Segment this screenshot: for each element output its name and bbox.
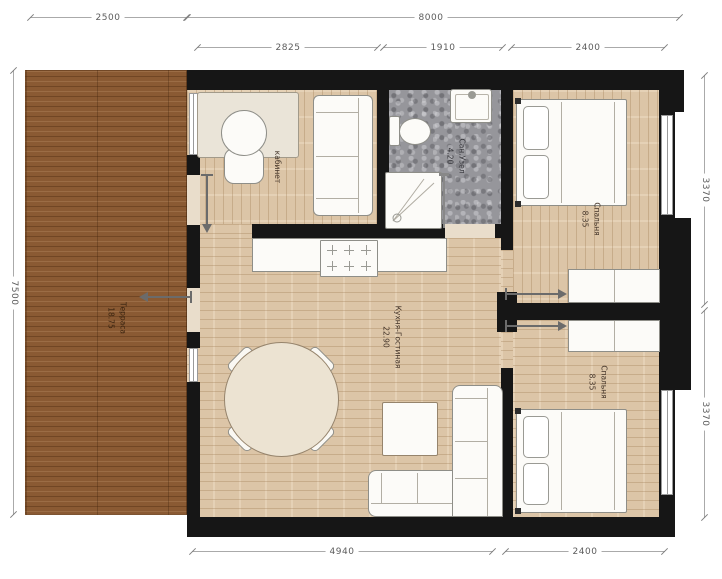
dim-bedroom1-width: 2400 — [572, 43, 605, 53]
terrace-floor — [25, 70, 187, 515]
wall-right-protrusion — [675, 218, 691, 390]
bed-post — [515, 98, 521, 104]
dim-bedroom2-height: 3370 — [700, 398, 710, 431]
room-area: 22.90 — [380, 306, 392, 369]
sofa-armrest-seam — [316, 112, 358, 113]
dim-terrace-width: 2500 — [92, 13, 125, 23]
wall-left-seg1 — [187, 155, 200, 175]
wall-left-seg3 — [187, 332, 200, 348]
dining-table — [224, 342, 339, 457]
shower-partition — [443, 174, 445, 228]
bedroom2-window — [661, 390, 673, 495]
stove-burner — [359, 243, 373, 257]
bathroom-door-threshold — [445, 224, 495, 238]
office-terrace-door-arrow-shaft — [206, 175, 208, 225]
wardrobe-divider — [614, 321, 615, 351]
bedroom2-door-arrow-tail — [505, 320, 507, 332]
footboard-seam — [614, 412, 615, 510]
sink-faucet — [468, 91, 476, 99]
room-label-bedroom1: Спальня 8.35 — [579, 202, 602, 235]
room-name: кабинет — [271, 151, 283, 184]
bedroom1-door-arrow-tail — [505, 288, 507, 300]
room-name: Спальня — [591, 202, 603, 235]
stove-burner — [325, 243, 339, 257]
wall-left-seg4 — [187, 382, 200, 517]
dim-office-width: 2825 — [272, 43, 305, 53]
living-terrace-door-arrow-shaft — [148, 296, 192, 298]
living-terrace-door-threshold — [187, 288, 200, 332]
stove-burner — [359, 259, 373, 273]
bedroom2-door-arrow-head — [558, 321, 567, 331]
dim-bathroom-width: 1910 — [427, 43, 460, 53]
sofa-back-seam — [487, 388, 488, 516]
bed-post — [515, 508, 521, 514]
stove-burner — [342, 243, 356, 257]
dim-bedroom1-height: 3370 — [700, 174, 710, 207]
sofa-cushion-seam — [417, 473, 418, 503]
footboard-seam — [614, 102, 615, 203]
office-terrace-door-threshold — [187, 175, 200, 225]
sofa-armrest-seam — [455, 398, 487, 399]
office-terrace-door-arrow-tail — [201, 174, 213, 176]
stove-burner — [325, 259, 339, 273]
room-area: 18.75 — [105, 302, 117, 334]
sofa-back-seam — [358, 98, 359, 213]
living-window — [189, 348, 198, 382]
room-area: 8.35 — [579, 202, 591, 235]
room-name: Кухня-Гостиная — [392, 306, 404, 369]
sofa-armrest-seam — [316, 198, 358, 199]
bed-bedroom1 — [516, 99, 627, 206]
wall-bottom — [187, 517, 675, 537]
room-label-terrace: Терраса 18.75 — [105, 302, 128, 334]
bed-post — [515, 408, 521, 414]
office-sofa — [313, 95, 373, 216]
bed-post — [515, 201, 521, 207]
bedroom2-door-threshold — [501, 332, 513, 368]
living-terrace-door-arrow-head — [139, 292, 148, 302]
room-name: Терраса — [117, 302, 129, 334]
sofa-cushion-seam — [455, 478, 487, 479]
bed-bedroom2 — [516, 409, 627, 513]
corner-sofa-vertical — [452, 385, 503, 517]
bedroom1-door-threshold — [501, 250, 513, 292]
stove — [320, 240, 378, 277]
sink — [450, 89, 492, 123]
bedroom2-door-arrow-shaft — [507, 325, 559, 327]
dim-living-width: 4940 — [326, 547, 359, 557]
stove-burner — [342, 259, 356, 273]
blanket-seam — [561, 102, 562, 203]
wall-top — [187, 70, 675, 90]
wall-left-seg2 — [187, 225, 200, 288]
office-chair-seat — [221, 110, 267, 156]
floor-plan: 2500 8000 2825 1910 2400 7500 3370 3370 … — [0, 0, 722, 579]
shower-glass-lines — [386, 173, 441, 228]
toilet-bowl — [399, 118, 431, 145]
wall-bathroom-corner — [495, 224, 513, 238]
room-label-living: Кухня-Гостиная 22.90 — [380, 306, 403, 369]
dim-total-height: 7500 — [9, 277, 19, 310]
room-label-bathroom: Сан.Узел 4.20 — [444, 138, 467, 173]
sofa-armrest-seam — [381, 473, 382, 503]
coffee-table — [382, 402, 438, 456]
bedroom1-window — [661, 115, 673, 215]
dim-bedroom2-width: 2400 — [569, 547, 602, 557]
sofa-cushion-seam — [316, 156, 358, 157]
wall-bedrooms-divider — [513, 303, 675, 320]
room-name: Спальня — [598, 365, 610, 398]
bedroom1-door-arrow-shaft — [507, 293, 559, 295]
living-terrace-door-arrow-tail — [190, 291, 192, 303]
room-area: 8.35 — [586, 365, 598, 398]
wardrobe-divider — [614, 270, 615, 302]
sofa-cushion-seam — [455, 441, 487, 442]
blanket-seam — [561, 412, 562, 510]
room-name: Сан.Узел — [456, 138, 468, 173]
room-label-office: кабинет — [271, 151, 283, 184]
wardrobe-bedroom1 — [568, 269, 660, 303]
shower — [385, 172, 442, 229]
pillow — [523, 463, 549, 505]
office-terrace-door-arrow-head — [202, 224, 212, 233]
pillow — [523, 416, 549, 458]
bedroom1-door-arrow-head — [558, 289, 567, 299]
pillow — [523, 155, 549, 199]
dim-total-width: 8000 — [415, 13, 448, 23]
pillow — [523, 106, 549, 150]
wardrobe-bedroom2 — [568, 320, 660, 352]
room-area: 4.20 — [444, 138, 456, 173]
room-label-bedroom2: Спальня 8.35 — [586, 365, 609, 398]
